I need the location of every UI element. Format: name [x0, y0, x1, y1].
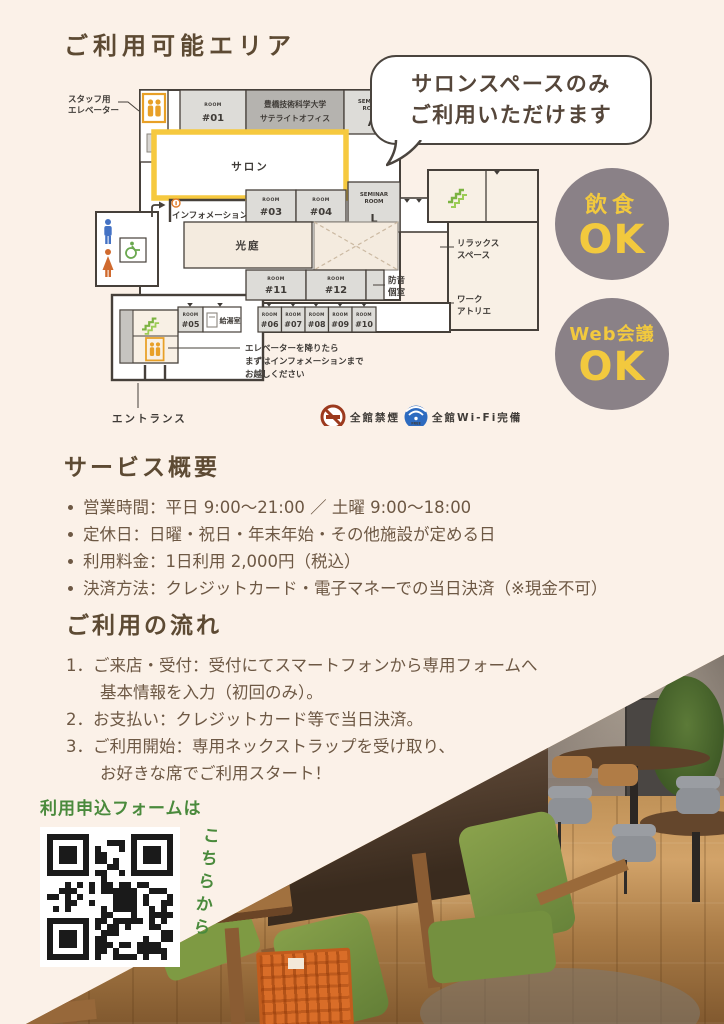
room-04: ROOM #04: [296, 190, 346, 222]
relax-space-label-1: リラックス: [457, 238, 499, 249]
flow-step-1-cont: 基本情報を入力（初回のみ）。: [66, 679, 706, 706]
photo-green-armchair-seat: [427, 910, 557, 985]
flow-step-2: 2．お支払い：クレジットカード等で当日決済。: [66, 706, 706, 733]
flow-section: ご利用の流れ 1．ご来店・受付：受付にてスマートフォンから専用フォームへ 基本情…: [66, 606, 706, 787]
courtyard: 光庭: [184, 222, 312, 268]
services-heading: サービス概要: [64, 448, 694, 482]
badge-web-label: Web会議: [569, 320, 654, 346]
flow-step-1: 1．ご来店・受付：受付にてスマートフォンから専用フォームへ: [66, 652, 706, 679]
room-01: ROOM #01: [180, 90, 246, 134]
room-12: ROOM #12: [306, 270, 366, 300]
room-01-number: #01: [202, 113, 224, 124]
salon-label: サロン: [231, 161, 269, 173]
service-item-fee: 利用料金：1日利用 2,000円（税込）: [64, 548, 694, 575]
staff-elevator-label-1: スタッフ用: [68, 94, 111, 105]
room-06: ROOM #06: [258, 307, 282, 332]
service-item-hours: 営業時間：平日 9:00〜21:00 ／ 土曜 9:00〜18:00: [64, 494, 694, 521]
flow-heading: ご利用の流れ: [66, 606, 706, 640]
room-09-caption: ROOM: [332, 312, 348, 317]
room-07-caption: ROOM: [285, 312, 301, 317]
soundproof-label-2: 個室: [387, 287, 406, 298]
room-03-number: #03: [260, 207, 282, 218]
service-item-closed: 定休日：日曜・祝日・年末年始・その他施設が定める日: [64, 521, 694, 548]
qr-block: 利用申込フォームは こちらから: [40, 794, 270, 967]
photo-gray-chair: [676, 788, 720, 814]
satellite-office-label-1: 豊橋技術科学大学: [264, 99, 327, 109]
work-atelier-label-2: アトリエ: [457, 307, 491, 317]
room-06-caption: ROOM: [262, 312, 278, 317]
courtyard-label: 光庭: [235, 239, 261, 252]
staff-elevator-label-2: エレベーター: [68, 105, 119, 116]
seminar-l-caption-2: ROOM: [364, 199, 383, 205]
badge-food-label: 飲食: [585, 187, 639, 219]
wheelchair-icon: [120, 238, 146, 262]
no-smoking-icon: [322, 406, 344, 426]
room-07: ROOM #07: [282, 307, 306, 332]
room-05-caption: ROOM: [183, 312, 199, 317]
room-10: ROOM #10: [352, 307, 376, 332]
room-12-number: #12: [325, 285, 347, 296]
photo-corner-table: [0, 999, 97, 1024]
wifi-label: 全館Wi-Fi完備: [431, 411, 522, 424]
qr-title: 利用申込フォームは: [40, 794, 270, 819]
room-05-number: #05: [182, 320, 200, 329]
speech-bubble-tail: [386, 140, 426, 167]
room-10-caption: ROOM: [356, 312, 372, 317]
photo-orange-crate: [256, 948, 354, 1024]
room-08-number: #08: [308, 320, 326, 329]
elevator-note-line-3: お越しください: [245, 369, 305, 380]
wifi-free-label: FREE: [411, 422, 421, 426]
room-09-number: #09: [331, 320, 349, 329]
satellite-office: 豊橋技術科学大学 サテライトオフィス: [246, 90, 344, 134]
speech-bubble-line-2: ご利用いただけます: [410, 100, 613, 132]
page-title: ご利用可能エリア: [64, 26, 296, 61]
room-11: ROOM #11: [246, 270, 306, 300]
room-06-number: #06: [261, 320, 279, 329]
room-04-number: #04: [310, 207, 332, 218]
room-11-number: #11: [265, 285, 287, 296]
flow-step-3: 3．ご利用開始：専用ネックストラップを受け取り、: [66, 733, 706, 760]
salon-room: サロン: [154, 132, 346, 198]
seminar-l-caption-1: SEMINAR: [360, 192, 389, 198]
crossed-area: [314, 222, 398, 270]
no-smoking-label: 全館禁煙: [349, 411, 400, 424]
entrance-label: エントランス: [112, 413, 187, 425]
soundproof-label-1: 防音: [388, 275, 406, 286]
elevator-note-line-2: まずはインフォメーションまで: [245, 356, 364, 367]
room-07-number: #07: [284, 320, 302, 329]
room-12-caption: ROOM: [327, 276, 345, 282]
badge-food-ok: 飲食 OK: [555, 168, 669, 280]
room-08-caption: ROOM: [309, 312, 325, 317]
room-01-caption: ROOM: [204, 102, 222, 108]
room-03-caption: ROOM: [262, 197, 280, 203]
information-label: インフォメーション: [172, 211, 249, 221]
flyer-page: ご利用可能エリア: [0, 0, 724, 1024]
badge-food-ok-text: OK: [579, 219, 646, 261]
room-08: ROOM #08: [305, 307, 329, 332]
qr-code-svg: [47, 834, 173, 960]
speech-bubble-line-1: サロンスペースのみ: [411, 69, 611, 101]
photo-table-leg: [692, 832, 700, 902]
satellite-office-label-2: サテライトオフィス: [260, 114, 330, 123]
service-item-payment: 決済方法：クレジットカード・電子マネーでの当日決済（※現金不可）: [64, 575, 694, 602]
wifi: FREE 全館Wi-Fi完備: [405, 406, 523, 427]
room-10-number: #10: [355, 320, 373, 329]
no-smoking: 全館禁煙: [322, 406, 400, 426]
photo-gray-chair: [612, 836, 656, 862]
flow-step-3-cont: お好きな席でご利用スタート！: [66, 760, 706, 787]
room-11-caption: ROOM: [267, 276, 285, 282]
kitchenette-label: 給湯室: [220, 316, 241, 325]
room-05: ROOM #05: [178, 307, 203, 332]
badge-web-meeting-ok: Web会議 OK: [555, 298, 669, 410]
room-09: ROOM #09: [329, 307, 353, 332]
services-section: サービス概要 営業時間：平日 9:00〜21:00 ／ 土曜 9:00〜18:0…: [64, 448, 694, 602]
room-03: ROOM #03: [246, 190, 296, 222]
elevator-note-line-1: エレベーターを降りたら: [245, 343, 339, 354]
badge-web-ok-text: OK: [579, 346, 646, 388]
room-04-caption: ROOM: [312, 197, 330, 203]
qr-side-text: こちらから: [186, 825, 223, 942]
kitchenette: 給湯室: [203, 307, 241, 332]
services-list: 営業時間：平日 9:00〜21:00 ／ 土曜 9:00〜18:00 定休日：日…: [64, 494, 694, 602]
relax-space-label-2: スペース: [457, 251, 490, 261]
speech-bubble: サロンスペースのみ ご利用いただけます: [370, 55, 652, 145]
qr-code: [40, 827, 180, 967]
kitchenette-icon: [207, 313, 217, 327]
work-atelier-label-1: ワーク: [457, 294, 483, 305]
photo-crate-label: [288, 958, 304, 969]
wifi-icon: FREE: [405, 406, 428, 427]
